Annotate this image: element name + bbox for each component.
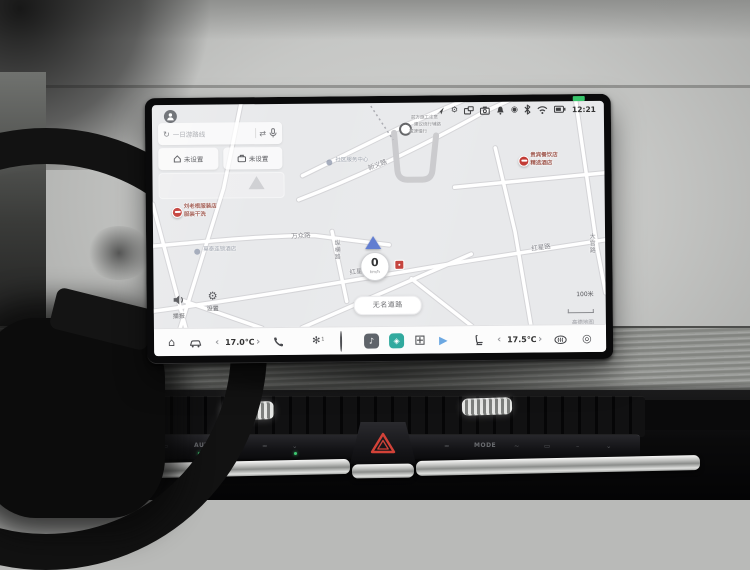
refresh-icon[interactable]: ↻	[163, 130, 170, 139]
company-shortcut-label: 未设置	[249, 153, 269, 163]
seat-button[interactable]	[474, 330, 484, 349]
nav-app[interactable]: 新义路 万众路 纵横路 红星路 红星路 大官路 刘老根服装店 服装干洗 贵宾餐饮…	[152, 101, 606, 356]
poi-marker[interactable]	[172, 207, 183, 218]
poi-name: 莫泰连锁酒店	[203, 246, 236, 253]
clock: 12:21	[572, 104, 596, 113]
defrost-button[interactable]	[554, 329, 567, 348]
gear-icon[interactable]: ⚙	[451, 105, 458, 115]
speed-indicator: 0 km/h	[360, 252, 389, 281]
route-icon[interactable]: ⇄	[259, 129, 266, 138]
music-app-button[interactable]: ♪	[364, 333, 379, 348]
mode-button[interactable]: MODE	[474, 439, 496, 453]
phone-button[interactable]	[273, 332, 284, 351]
airflow-button[interactable]: ~	[514, 439, 519, 453]
defrost-front-button[interactable]: ≈	[444, 439, 449, 453]
passenger-temp-up[interactable]: ›	[538, 333, 542, 344]
speed-value: 0	[361, 256, 388, 269]
current-road-pill[interactable]: 无名道路	[354, 296, 422, 316]
chrome-trim-center	[352, 463, 414, 478]
volume-knob-button[interactable]: ◎	[582, 332, 592, 344]
map-scale: 100米 高德地图	[552, 289, 594, 326]
shortcut-row: 未设置 未设置	[158, 147, 282, 170]
wifi-icon[interactable]	[537, 105, 548, 114]
connect-button[interactable]	[340, 331, 342, 350]
temp-sync-button[interactable]: –	[576, 439, 579, 453]
record-icon[interactable]: ◉	[511, 105, 518, 115]
road-label: 万众路	[291, 229, 311, 240]
panel-ghost-row	[158, 172, 284, 199]
traffic-note: 建议绕行辅路	[414, 122, 441, 128]
cluster-shadow	[86, 226, 152, 280]
broadcast-button[interactable]: 播报	[166, 291, 192, 320]
gear-icon: ⚙	[200, 290, 226, 302]
camera-icon[interactable]	[480, 105, 490, 114]
hazard-light-button[interactable]	[350, 422, 416, 464]
bell-icon[interactable]	[496, 105, 505, 114]
fan-increase-button[interactable]: ⌄	[292, 439, 297, 453]
driver-temp[interactable]: 17.0℃	[225, 337, 255, 346]
app-grid-button[interactable]: ⊞	[414, 332, 426, 348]
home-shortcut-label: 未设置	[184, 154, 204, 164]
broadcast-label: 播报	[166, 311, 192, 320]
map-watermark-triangle	[248, 176, 264, 189]
seat-icon	[474, 334, 484, 345]
passenger-temp-down[interactable]: ‹	[497, 334, 501, 345]
dock-bar: ⌂ ‹ 17.0℃ › ✻1 ♪ ◈ ⊞ ▶	[154, 324, 606, 356]
speaker-icon	[172, 294, 185, 306]
scale-distance: 100米	[552, 289, 594, 298]
traffic-note: 减速慢行	[409, 130, 427, 136]
home-shortcut-button[interactable]: 未设置	[158, 148, 218, 171]
poi-name: 贵宾餐饮店	[530, 152, 558, 159]
fan-led	[294, 452, 297, 455]
assistant-app-button[interactable]: ◈	[389, 333, 404, 348]
bluetooth-icon[interactable]	[524, 105, 531, 115]
poi-name: 服装干洗	[184, 212, 206, 219]
car-icon	[189, 338, 202, 348]
poi-marker[interactable]	[194, 249, 200, 255]
speed-unit: km/h	[361, 269, 388, 274]
search-bar[interactable]: ↻ 一日游路线 ⇄	[158, 122, 282, 145]
poi-name: 精选酒店	[530, 160, 552, 167]
search-placeholder: 一日游路线	[173, 128, 253, 139]
settings-button[interactable]: ⚙ 设置	[200, 290, 226, 319]
person-icon	[166, 112, 175, 121]
map-tools: 播报 ⚙ 设置	[166, 290, 226, 320]
seat-heat-button[interactable]: ▭	[544, 439, 550, 453]
vent-slider-right[interactable]	[462, 397, 513, 416]
user-avatar[interactable]	[164, 110, 177, 123]
media-app-button[interactable]: ▶	[439, 333, 448, 346]
battery-icon	[554, 105, 566, 113]
poi-marker[interactable]	[326, 159, 332, 165]
settings-label: 设置	[200, 303, 226, 312]
vehicle-heading-arrow	[365, 236, 381, 249]
home-button[interactable]: ⌂	[168, 336, 175, 348]
defrost-icon	[554, 334, 567, 344]
ac-button[interactable]: ≈	[262, 439, 267, 453]
vehicle-button[interactable]	[189, 333, 202, 352]
screen-cast-icon[interactable]	[464, 106, 474, 115]
divider	[255, 128, 256, 138]
hazard-triangle-icon	[370, 432, 396, 454]
home-icon	[173, 155, 181, 163]
poi-name: 刘老根服装店	[184, 204, 217, 211]
assistant-icon: ◈	[393, 336, 399, 345]
road-label: 纵横路	[332, 239, 341, 260]
briefcase-icon	[237, 154, 246, 162]
music-note-icon: ♪	[369, 336, 374, 345]
nav-arrow-icon[interactable]	[436, 106, 445, 115]
driver-temp-down[interactable]: ‹	[215, 337, 219, 348]
road-label: 大官路	[587, 233, 596, 254]
driver-temp-up[interactable]: ›	[256, 336, 260, 347]
phone-icon	[273, 336, 284, 347]
passenger-temp[interactable]: 17.5℃	[507, 334, 537, 343]
scale-bar	[568, 309, 594, 313]
vent-right-cap	[645, 400, 750, 430]
mic-icon[interactable]	[269, 128, 277, 138]
fan-button[interactable]: ✻1	[312, 335, 321, 347]
fan-level-badge: 1	[321, 333, 324, 345]
strip-chevron-button[interactable]: ⌄	[606, 439, 611, 453]
infotainment-screen: 新义路 万众路 纵横路 红星路 红星路 大官路 刘老根服装店 服装干洗 贵宾餐饮…	[145, 94, 614, 364]
poi-name: 社区服务中心	[335, 157, 368, 164]
company-shortcut-button[interactable]: 未设置	[223, 147, 283, 170]
connect-icon	[340, 330, 342, 351]
recording-indicator	[573, 96, 585, 101]
camera-poi-marker	[394, 260, 404, 270]
poi-marker[interactable]	[518, 156, 529, 167]
